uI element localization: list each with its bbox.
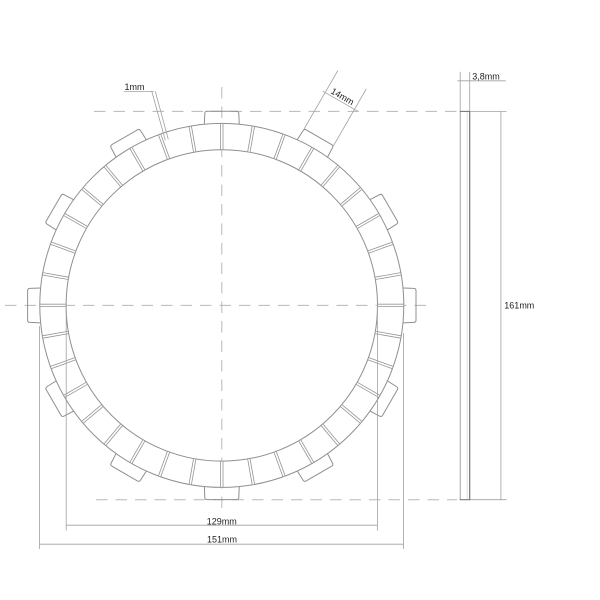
- svg-text:129mm: 129mm: [207, 517, 237, 527]
- svg-text:1mm: 1mm: [125, 82, 145, 92]
- svg-text:151mm: 151mm: [207, 535, 237, 545]
- svg-text:3,8mm: 3,8mm: [472, 71, 500, 81]
- svg-text:161mm: 161mm: [504, 301, 534, 311]
